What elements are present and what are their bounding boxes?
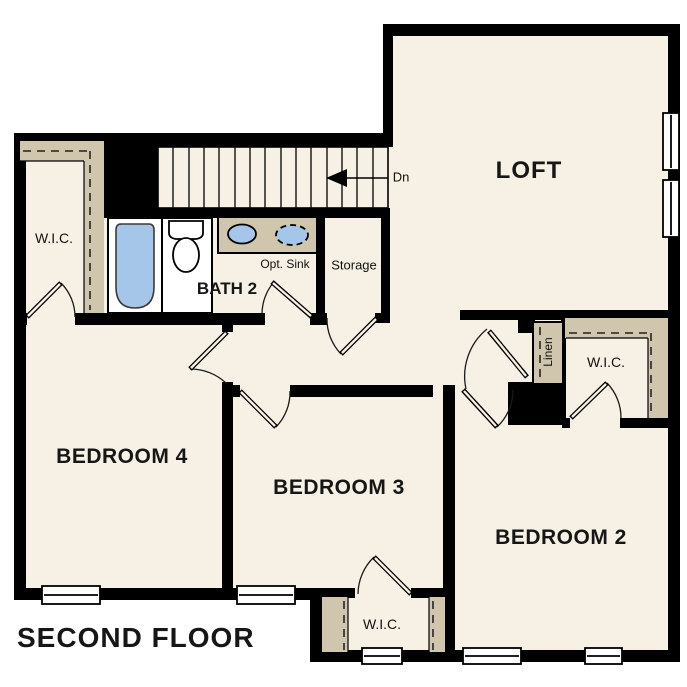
window <box>463 648 521 664</box>
room-label-bath2: BATH 2 <box>197 279 257 299</box>
room-label-bedroom4: BEDROOM 4 <box>56 445 188 469</box>
closet-label-wic-bedroom4: W.I.C. <box>35 230 73 246</box>
closet-label-wic-bedroom2: W.I.C. <box>587 354 625 370</box>
window <box>663 180 679 237</box>
optional-sink-fixture <box>276 225 308 245</box>
door-arc-bedroom3 <box>276 391 290 427</box>
room-label-storage: Storage <box>331 258 377 273</box>
door-arc-bath2 <box>262 283 273 314</box>
vanity-counter <box>218 217 317 253</box>
closet-label-wic-bedroom3: W.I.C. <box>363 616 401 632</box>
bathtub-fixture <box>108 218 162 313</box>
stairs-label-dn: Dn <box>393 170 410 185</box>
door-arc-wic2 <box>607 383 621 418</box>
room-label-bedroom2: BEDROOM 2 <box>495 526 627 550</box>
door-arc-bedroom4 <box>190 369 227 384</box>
note-label-opt-sink: Opt. Sink <box>260 257 309 271</box>
plan-vector-layer <box>0 0 687 687</box>
door-arc-wic4 <box>61 283 75 317</box>
plan-title: SECOND FLOOR <box>17 622 255 654</box>
room-label-bedroom3: BEDROOM 3 <box>273 476 405 500</box>
window <box>585 648 622 664</box>
room-label-loft: LOFT <box>496 157 563 185</box>
door-arc-bedroom2 <box>497 390 513 427</box>
window <box>237 586 295 604</box>
window <box>362 648 402 664</box>
floor-plan: LOFT W.I.C. BATH 2 Opt. Sink Storage Dn … <box>0 0 687 687</box>
window <box>663 113 679 170</box>
closet-label-linen: Linen <box>541 337 555 366</box>
door-arc-storage <box>327 318 341 354</box>
sink-fixture <box>228 225 256 244</box>
door-arc-hall <box>465 329 487 389</box>
window <box>42 586 100 604</box>
door-arc-wic3 <box>358 557 374 594</box>
